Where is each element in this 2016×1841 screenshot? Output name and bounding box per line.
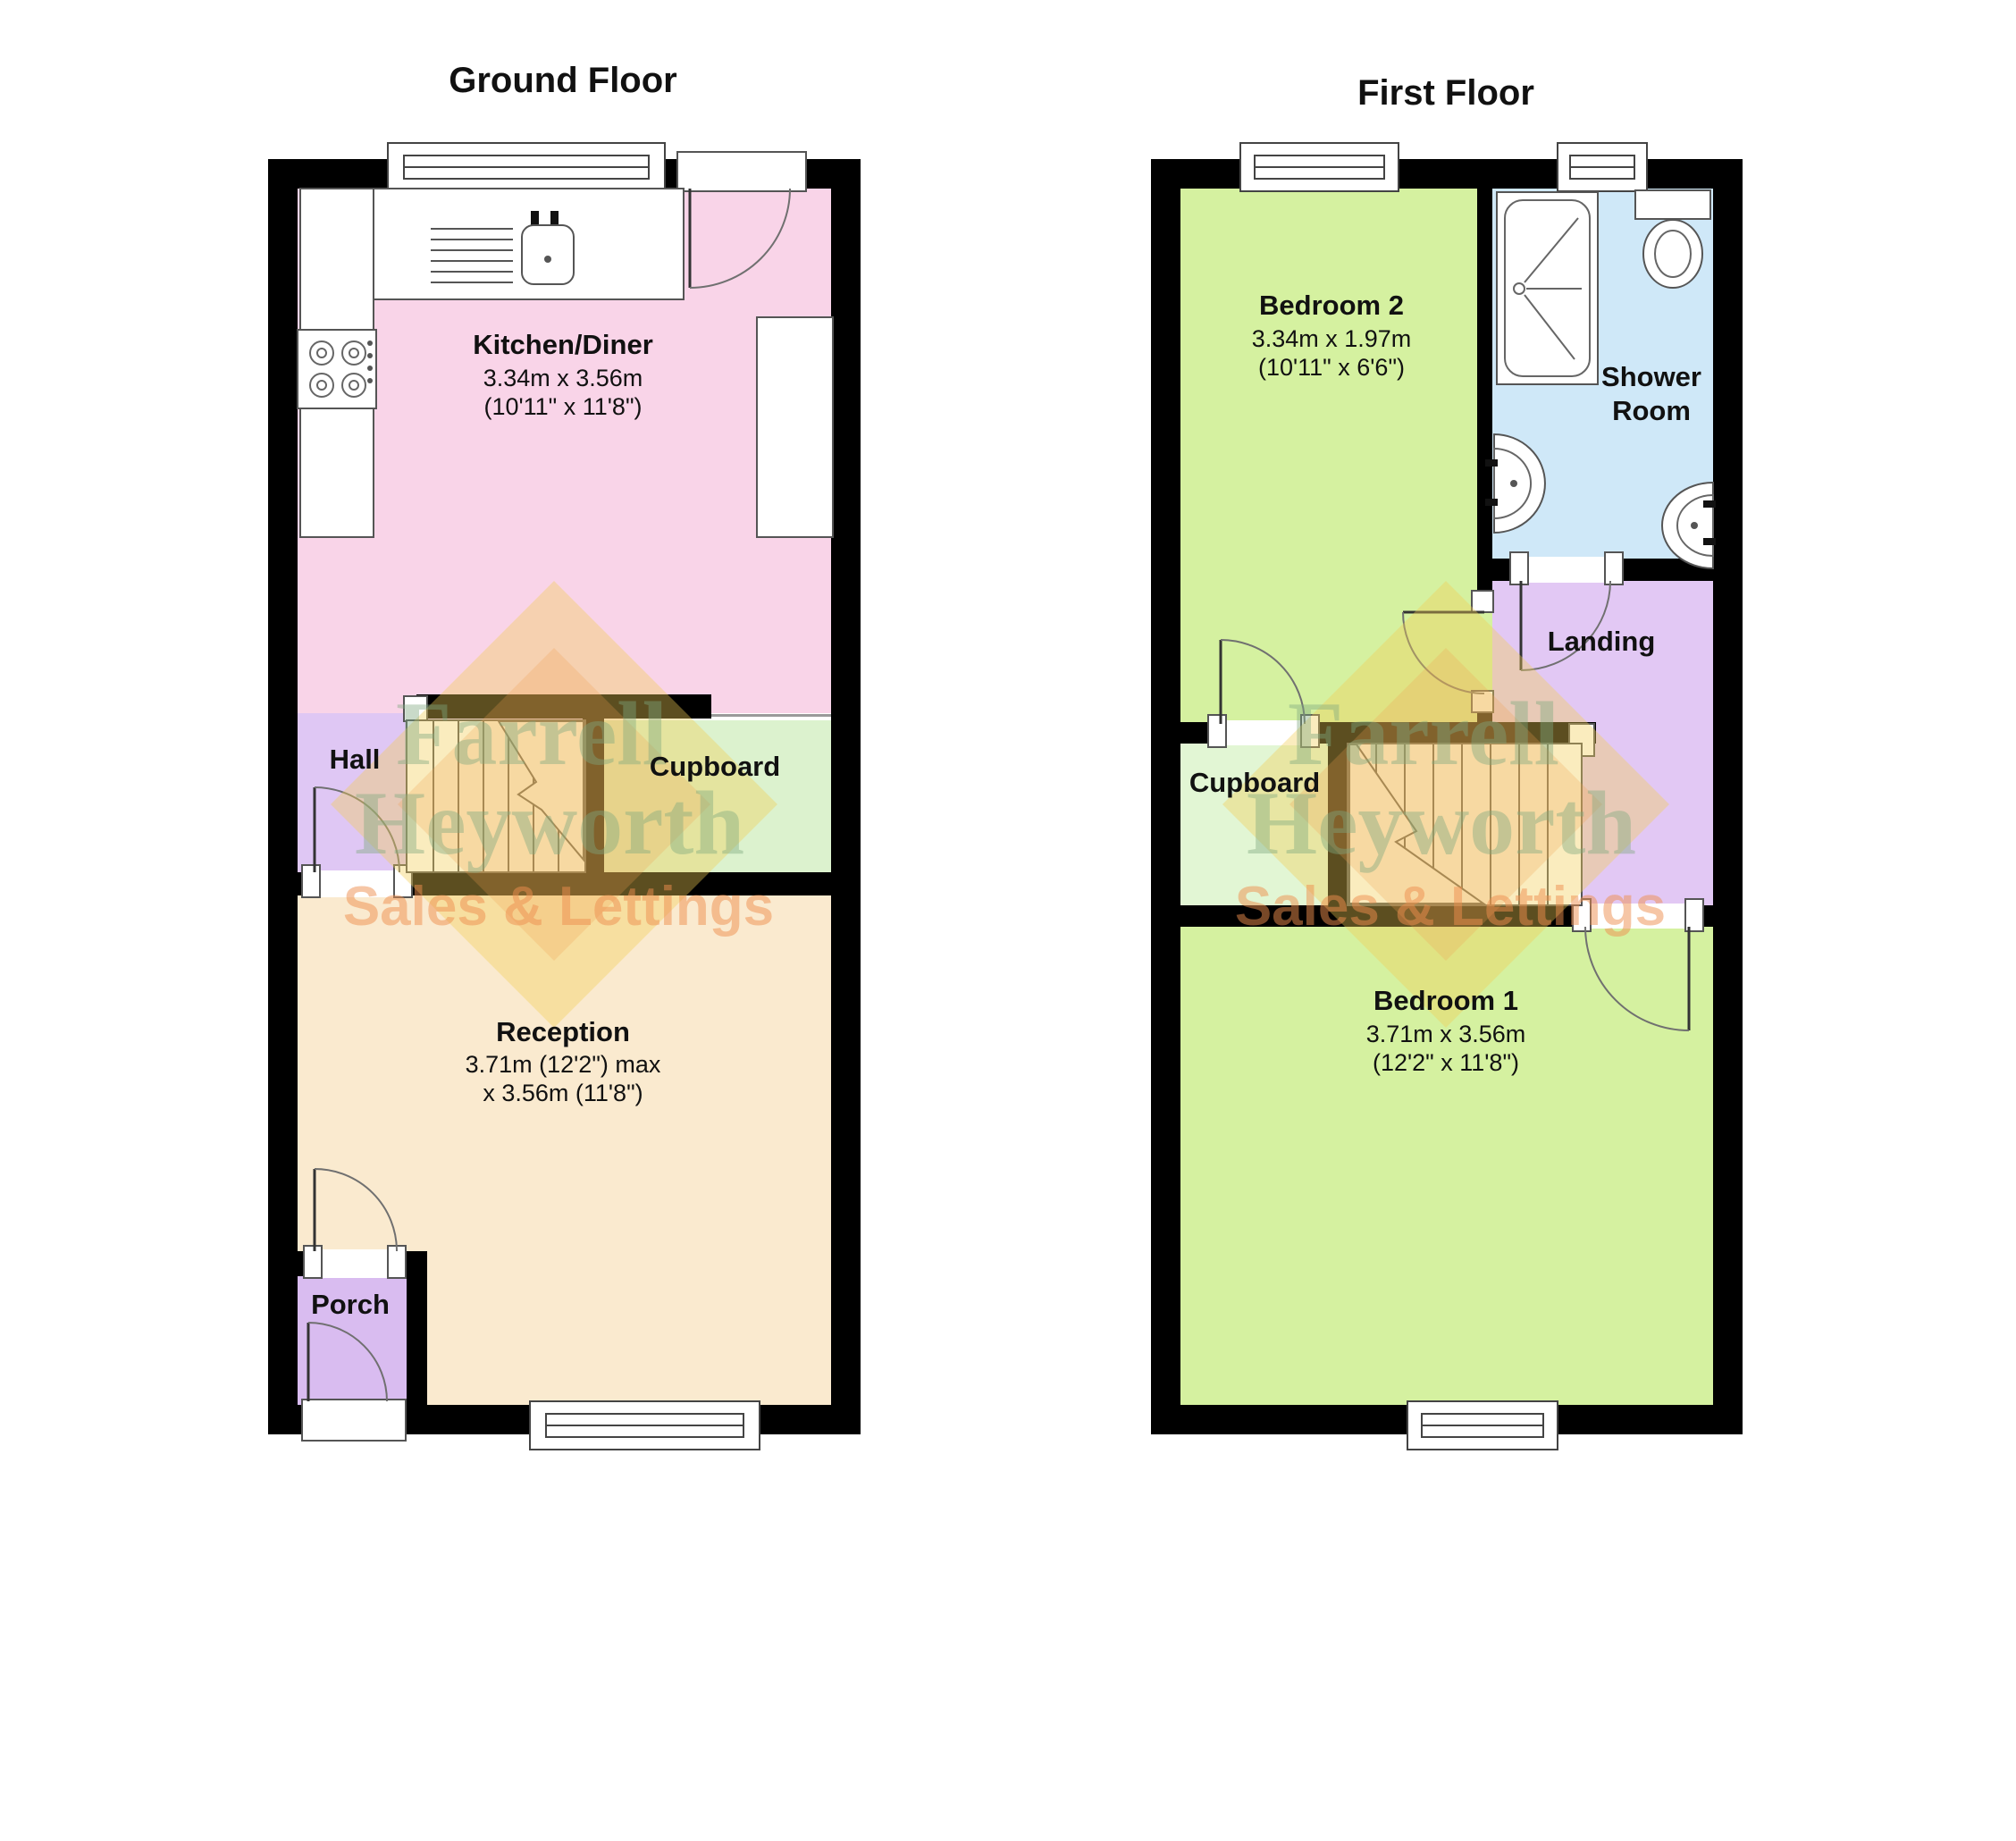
- door-jamb: [304, 1246, 322, 1278]
- bedroom1-dim2: (12'2" x 11'8"): [1373, 1049, 1519, 1076]
- watermark-line1: Farrell: [1288, 684, 1559, 785]
- hall-label: Hall: [330, 744, 381, 775]
- kitchen-unit-right: [757, 317, 833, 537]
- shower-room-label-2: Room: [1612, 395, 1691, 426]
- bedroom2-window: [1240, 143, 1399, 191]
- watermark-line2: Heyworth: [355, 773, 744, 874]
- bedroom1-dim1: 3.71m x 3.56m: [1366, 1021, 1526, 1047]
- door-jamb: [1208, 715, 1226, 747]
- kitchen-dim1: 3.34m x 3.56m: [483, 365, 643, 391]
- kitchen-dim2: (10'11" x 11'8"): [483, 393, 642, 420]
- watermark-line3: Sales & Lettings: [343, 876, 774, 937]
- ground-floor-plan: Ground Floor: [268, 61, 861, 1450]
- door-jamb: [1685, 899, 1703, 931]
- shower-cubicle-icon: [1497, 192, 1598, 384]
- bedroom2-label: Bedroom 2: [1259, 290, 1404, 321]
- bedroom1-window: [1407, 1401, 1558, 1450]
- cupboard-ground-label: Cupboard: [650, 751, 780, 782]
- kitchen-window: [388, 143, 665, 191]
- door-jamb: [1472, 591, 1493, 612]
- porch-label: Porch: [311, 1289, 390, 1320]
- first-floor-plan: First Floor: [1151, 73, 1743, 1450]
- hob-icon: [298, 330, 376, 408]
- first-floor-title: First Floor: [1357, 73, 1534, 113]
- kitchen-label: Kitchen/Diner: [473, 329, 653, 360]
- door-jamb: [302, 865, 320, 897]
- door-jamb: [1510, 552, 1528, 584]
- bedroom1-label: Bedroom 1: [1373, 985, 1518, 1016]
- ground-floor-title: Ground Floor: [449, 61, 677, 100]
- bedroom2-dim1: 3.34m x 1.97m: [1252, 325, 1412, 352]
- shower-window: [1558, 143, 1647, 191]
- floorplan-canvas: Ground Floor: [0, 0, 2016, 1841]
- watermark-line1: Farrell: [396, 684, 668, 785]
- reception-dim2: x 3.56m (11'8"): [483, 1080, 643, 1106]
- reception-label: Reception: [496, 1016, 630, 1047]
- shower-doorway: [1521, 557, 1612, 583]
- cupboard-first-label: Cupboard: [1189, 767, 1320, 798]
- bedroom2-dim2: (10'11" x 6'6"): [1258, 354, 1405, 381]
- back-door-frame: [677, 152, 806, 191]
- shower-room-label-1: Shower: [1601, 361, 1701, 392]
- watermark-line3: Sales & Lettings: [1235, 876, 1666, 937]
- front-door-frame: [302, 1400, 406, 1441]
- reception-window: [530, 1401, 760, 1450]
- porch-doorway: [315, 1249, 395, 1278]
- reception-dim1: 3.71m (12'2") max: [466, 1051, 661, 1078]
- door-jamb: [1605, 552, 1623, 584]
- landing-label: Landing: [1548, 626, 1656, 657]
